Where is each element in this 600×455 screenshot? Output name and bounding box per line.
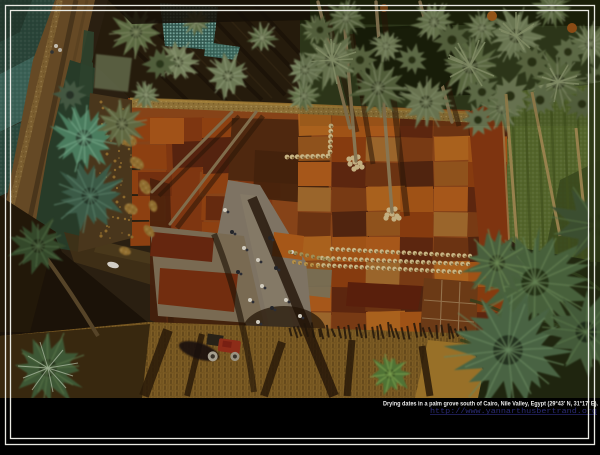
svg-text:http://www.yannarthusbertrand.: http://www.yannarthusbertrand.org [430, 408, 597, 416]
svg-text:Drying dates in a palm grove s: Drying dates in a palm grove south of Ca… [383, 402, 598, 408]
